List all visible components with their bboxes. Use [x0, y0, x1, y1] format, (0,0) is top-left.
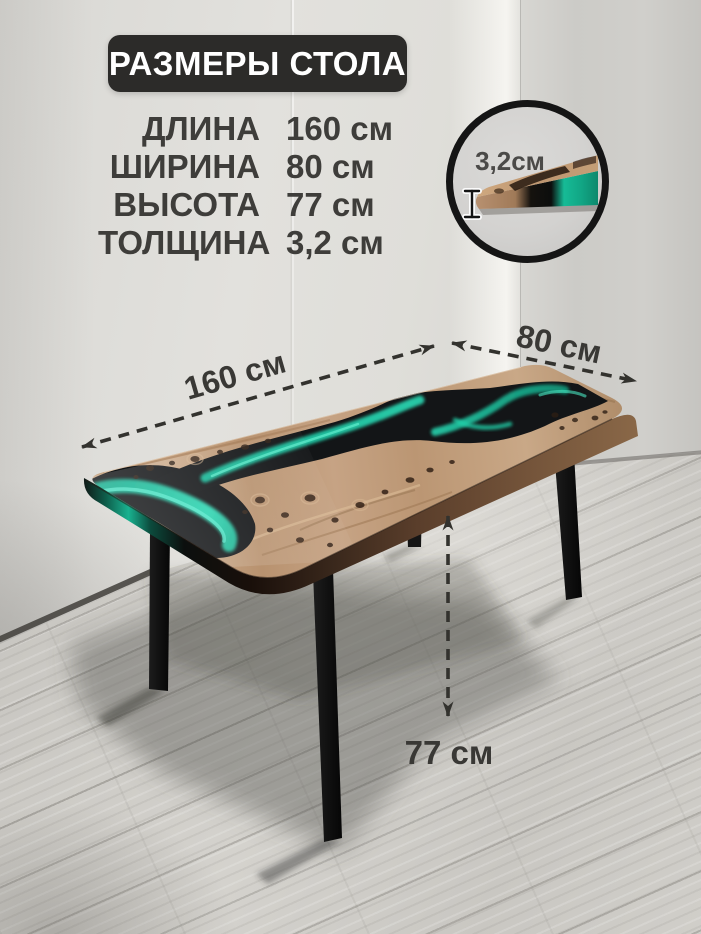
spec-label: ВЫСОТА	[98, 186, 260, 224]
thickness-dimension-label: 3,2см	[452, 146, 568, 177]
spec-label: ШИРИНА	[98, 148, 260, 186]
spec-value: 80 см	[286, 148, 375, 186]
spec-row-width: ШИРИНА 80 см	[98, 148, 428, 186]
height-dimension-label: 77 см	[378, 734, 520, 772]
title-badge: РАЗМЕРЫ СТОЛА	[108, 35, 407, 92]
thickness-closeup	[453, 107, 602, 256]
spec-value: 3,2 см	[286, 224, 384, 262]
spec-value: 77 см	[286, 186, 375, 224]
thickness-detail-inset	[446, 100, 609, 263]
page-title: РАЗМЕРЫ СТОЛА	[109, 45, 406, 83]
spec-label: ТОЛЩИНА	[98, 224, 260, 262]
spec-row-height: ВЫСОТА 77 см	[98, 186, 428, 224]
spec-row-thickness: ТОЛЩИНА 3,2 см	[98, 224, 428, 262]
product-photo-scene: РАЗМЕРЫ СТОЛА ДЛИНА 160 см ШИРИНА 80 см …	[0, 0, 701, 934]
spec-row-length: ДЛИНА 160 см	[98, 110, 428, 148]
spec-value: 160 см	[286, 110, 393, 148]
spec-list: ДЛИНА 160 см ШИРИНА 80 см ВЫСОТА 77 см Т…	[98, 110, 428, 262]
spec-label: ДЛИНА	[98, 110, 260, 148]
